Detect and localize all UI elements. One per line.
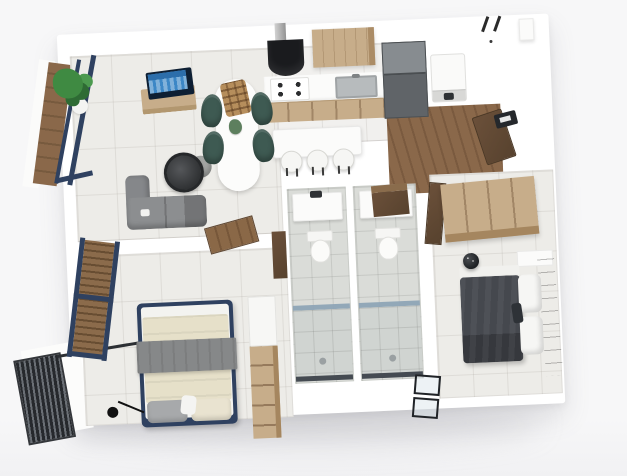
pillow-small-white xyxy=(180,395,197,415)
glass-door-pane xyxy=(412,397,439,419)
cooktop xyxy=(270,77,310,102)
toilet-bowl xyxy=(310,239,331,263)
tv-screen xyxy=(148,70,188,94)
pillow xyxy=(520,316,545,355)
bathroom-wall-shelf xyxy=(272,231,288,279)
shower-floor xyxy=(293,308,353,376)
dresser-top-white xyxy=(247,296,277,347)
shower-glass-edge xyxy=(296,374,353,381)
toilet-bowl xyxy=(378,236,399,260)
floorplan-render xyxy=(0,0,627,476)
intercom-screen xyxy=(499,115,511,123)
faucet xyxy=(352,74,360,78)
shower-floor xyxy=(359,305,423,374)
wardrobe-dresser xyxy=(247,296,281,439)
potted-plant xyxy=(52,67,100,117)
kitchen-sink xyxy=(335,75,378,99)
dresser-drawers-wood xyxy=(250,346,282,439)
table-plant xyxy=(229,119,243,135)
sofa-seat xyxy=(126,195,207,230)
washing-machine xyxy=(430,53,467,102)
kitchen-upper-cabinet xyxy=(312,27,376,68)
shower-drain xyxy=(319,357,326,364)
hook-dot xyxy=(489,40,492,43)
wardrobe xyxy=(440,176,539,243)
plant-pot xyxy=(72,98,89,115)
bedroom-2 xyxy=(429,169,561,396)
pillow-cream xyxy=(191,398,232,422)
shower-drain xyxy=(389,354,396,361)
sofa-throw xyxy=(140,209,149,216)
fridge-tall-unit xyxy=(381,41,428,119)
fridge-top-face xyxy=(382,42,425,76)
range-hood xyxy=(267,39,305,77)
vanity-faucet xyxy=(310,191,322,199)
apartment-plan xyxy=(47,7,576,429)
floor-lamp-head xyxy=(107,407,118,418)
washer-door xyxy=(444,93,454,100)
bathroom-1 xyxy=(287,186,354,383)
glass-shower-door xyxy=(411,374,443,428)
blanket-gray xyxy=(136,337,237,373)
plant-leaves xyxy=(52,68,83,99)
overdoor-cabinet xyxy=(371,183,410,217)
entry-floating-shelf xyxy=(519,18,535,41)
glass-door-pane xyxy=(414,374,441,396)
